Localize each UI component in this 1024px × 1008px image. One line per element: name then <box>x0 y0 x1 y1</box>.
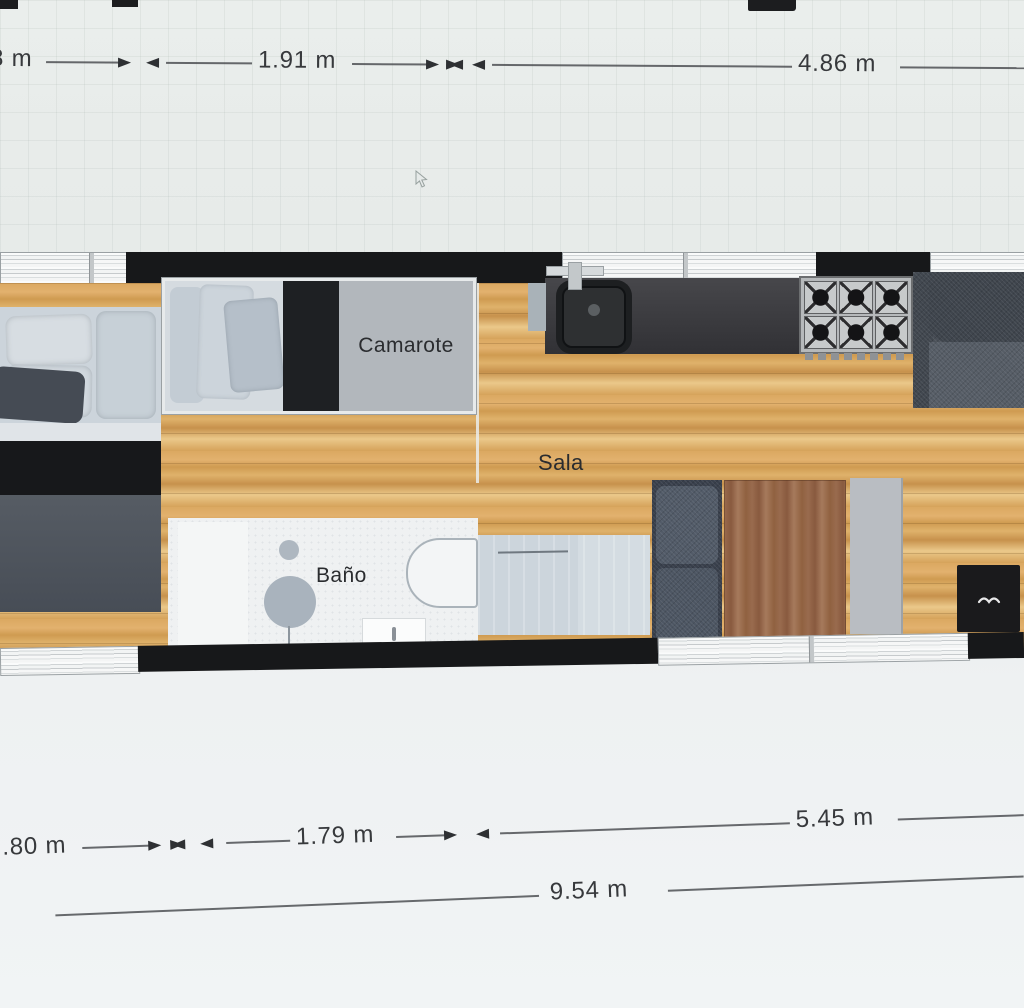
stove-burner <box>839 281 872 314</box>
bathroom-sink[interactable] <box>264 576 316 628</box>
dimension-line <box>55 895 539 916</box>
room-label-bano[interactable]: Baño <box>316 564 367 588</box>
mattress-edge <box>0 423 161 441</box>
dim-label: 8 m <box>0 45 33 73</box>
sofa-back-cushion <box>929 272 1024 342</box>
sofa[interactable] <box>913 272 1024 408</box>
window-segment[interactable] <box>0 646 140 676</box>
bunk-mattress-panel: Camarote <box>339 281 473 411</box>
dimension-line <box>46 61 128 64</box>
dim-label: 4.86 m <box>798 50 876 78</box>
dining-table[interactable] <box>724 480 846 652</box>
dim-label: 1.79 m <box>296 821 375 852</box>
stove-burner <box>875 281 908 314</box>
kitchen-sink[interactable] <box>556 280 632 354</box>
mouse-cursor-icon <box>415 170 430 194</box>
cropped-dimension-mark <box>112 0 138 7</box>
dimension-line <box>492 64 792 68</box>
dimension-arrow-left <box>146 58 159 68</box>
dimension-line <box>82 844 156 849</box>
dimension-arrow-right <box>426 59 439 69</box>
window-mullion <box>809 636 814 662</box>
stove-burner <box>839 316 872 349</box>
dark-pillow <box>0 366 86 424</box>
window-segment[interactable] <box>0 252 128 285</box>
dim-label: 1.91 m <box>258 46 336 74</box>
fireplace-stove[interactable] <box>957 565 1020 632</box>
window-mullion <box>89 253 94 284</box>
double-bed[interactable] <box>0 307 161 612</box>
bunk-divider <box>283 281 339 411</box>
dimension-arrow-left <box>476 829 489 839</box>
dimension-line <box>668 875 1024 891</box>
faucet <box>568 262 582 290</box>
partition-line <box>476 283 479 483</box>
flame-logo-icon <box>976 593 1002 605</box>
loveseat-cushion <box>656 568 718 646</box>
pillow <box>96 311 156 419</box>
dimension-arrow-right <box>446 60 459 70</box>
dimension-line <box>166 62 252 65</box>
stove-burner <box>804 281 837 314</box>
dim-label: 5.45 m <box>795 803 874 834</box>
bathtub[interactable] <box>406 538 478 608</box>
bathroom-drain <box>279 540 299 560</box>
gas-stove[interactable] <box>799 276 913 354</box>
cabinet[interactable] <box>850 478 903 634</box>
dimension-arrow-left <box>200 838 213 848</box>
dimension-arrow-right <box>148 840 161 850</box>
shower[interactable] <box>478 535 650 635</box>
dimension-arrow-right <box>170 839 183 849</box>
pillow <box>5 314 93 367</box>
wall-segment[interactable] <box>968 632 1024 659</box>
stove-burner <box>804 316 837 349</box>
bathroom-mat <box>178 522 248 646</box>
duvet <box>0 495 161 612</box>
loveseat[interactable] <box>652 480 722 652</box>
cropped-dimension-mark <box>0 0 18 9</box>
sofa-seat-cushion <box>929 342 1024 408</box>
floorplan-canvas: Camarote Baño <box>0 250 1024 680</box>
dimension-line <box>226 840 290 844</box>
blanket-fold <box>0 441 161 495</box>
dimension-arrow-right <box>118 58 131 68</box>
dim-label: 9.54 m <box>549 875 628 906</box>
dimension-line <box>352 63 436 66</box>
dimension-line <box>900 66 1024 69</box>
room-label-camarote[interactable]: Camarote <box>358 334 453 358</box>
dimension-arrow-left <box>472 60 485 70</box>
dimension-line <box>396 834 450 838</box>
bathroom-floor: Baño <box>168 518 478 650</box>
loveseat-cushion <box>656 486 718 564</box>
floorplan-photo: 8 m 1.91 m 4.86 m <box>0 0 1024 1008</box>
window-segment[interactable] <box>658 633 970 666</box>
dim-label: .80 m <box>2 832 67 862</box>
stove-burner <box>875 316 908 349</box>
dimension-row-top: 8 m 1.91 m 4.86 m <box>0 37 1024 107</box>
dimension-arrow-right <box>444 830 457 840</box>
dimension-line <box>898 814 1024 820</box>
counter-end-panel <box>528 283 546 331</box>
pillow <box>223 297 285 393</box>
cropped-dimension-mark <box>748 0 796 11</box>
towel-bar <box>498 550 568 553</box>
bunk-bed[interactable]: Camarote <box>162 278 476 414</box>
room-label-sala[interactable]: Sala <box>538 450 584 476</box>
dimension-line <box>500 822 790 834</box>
